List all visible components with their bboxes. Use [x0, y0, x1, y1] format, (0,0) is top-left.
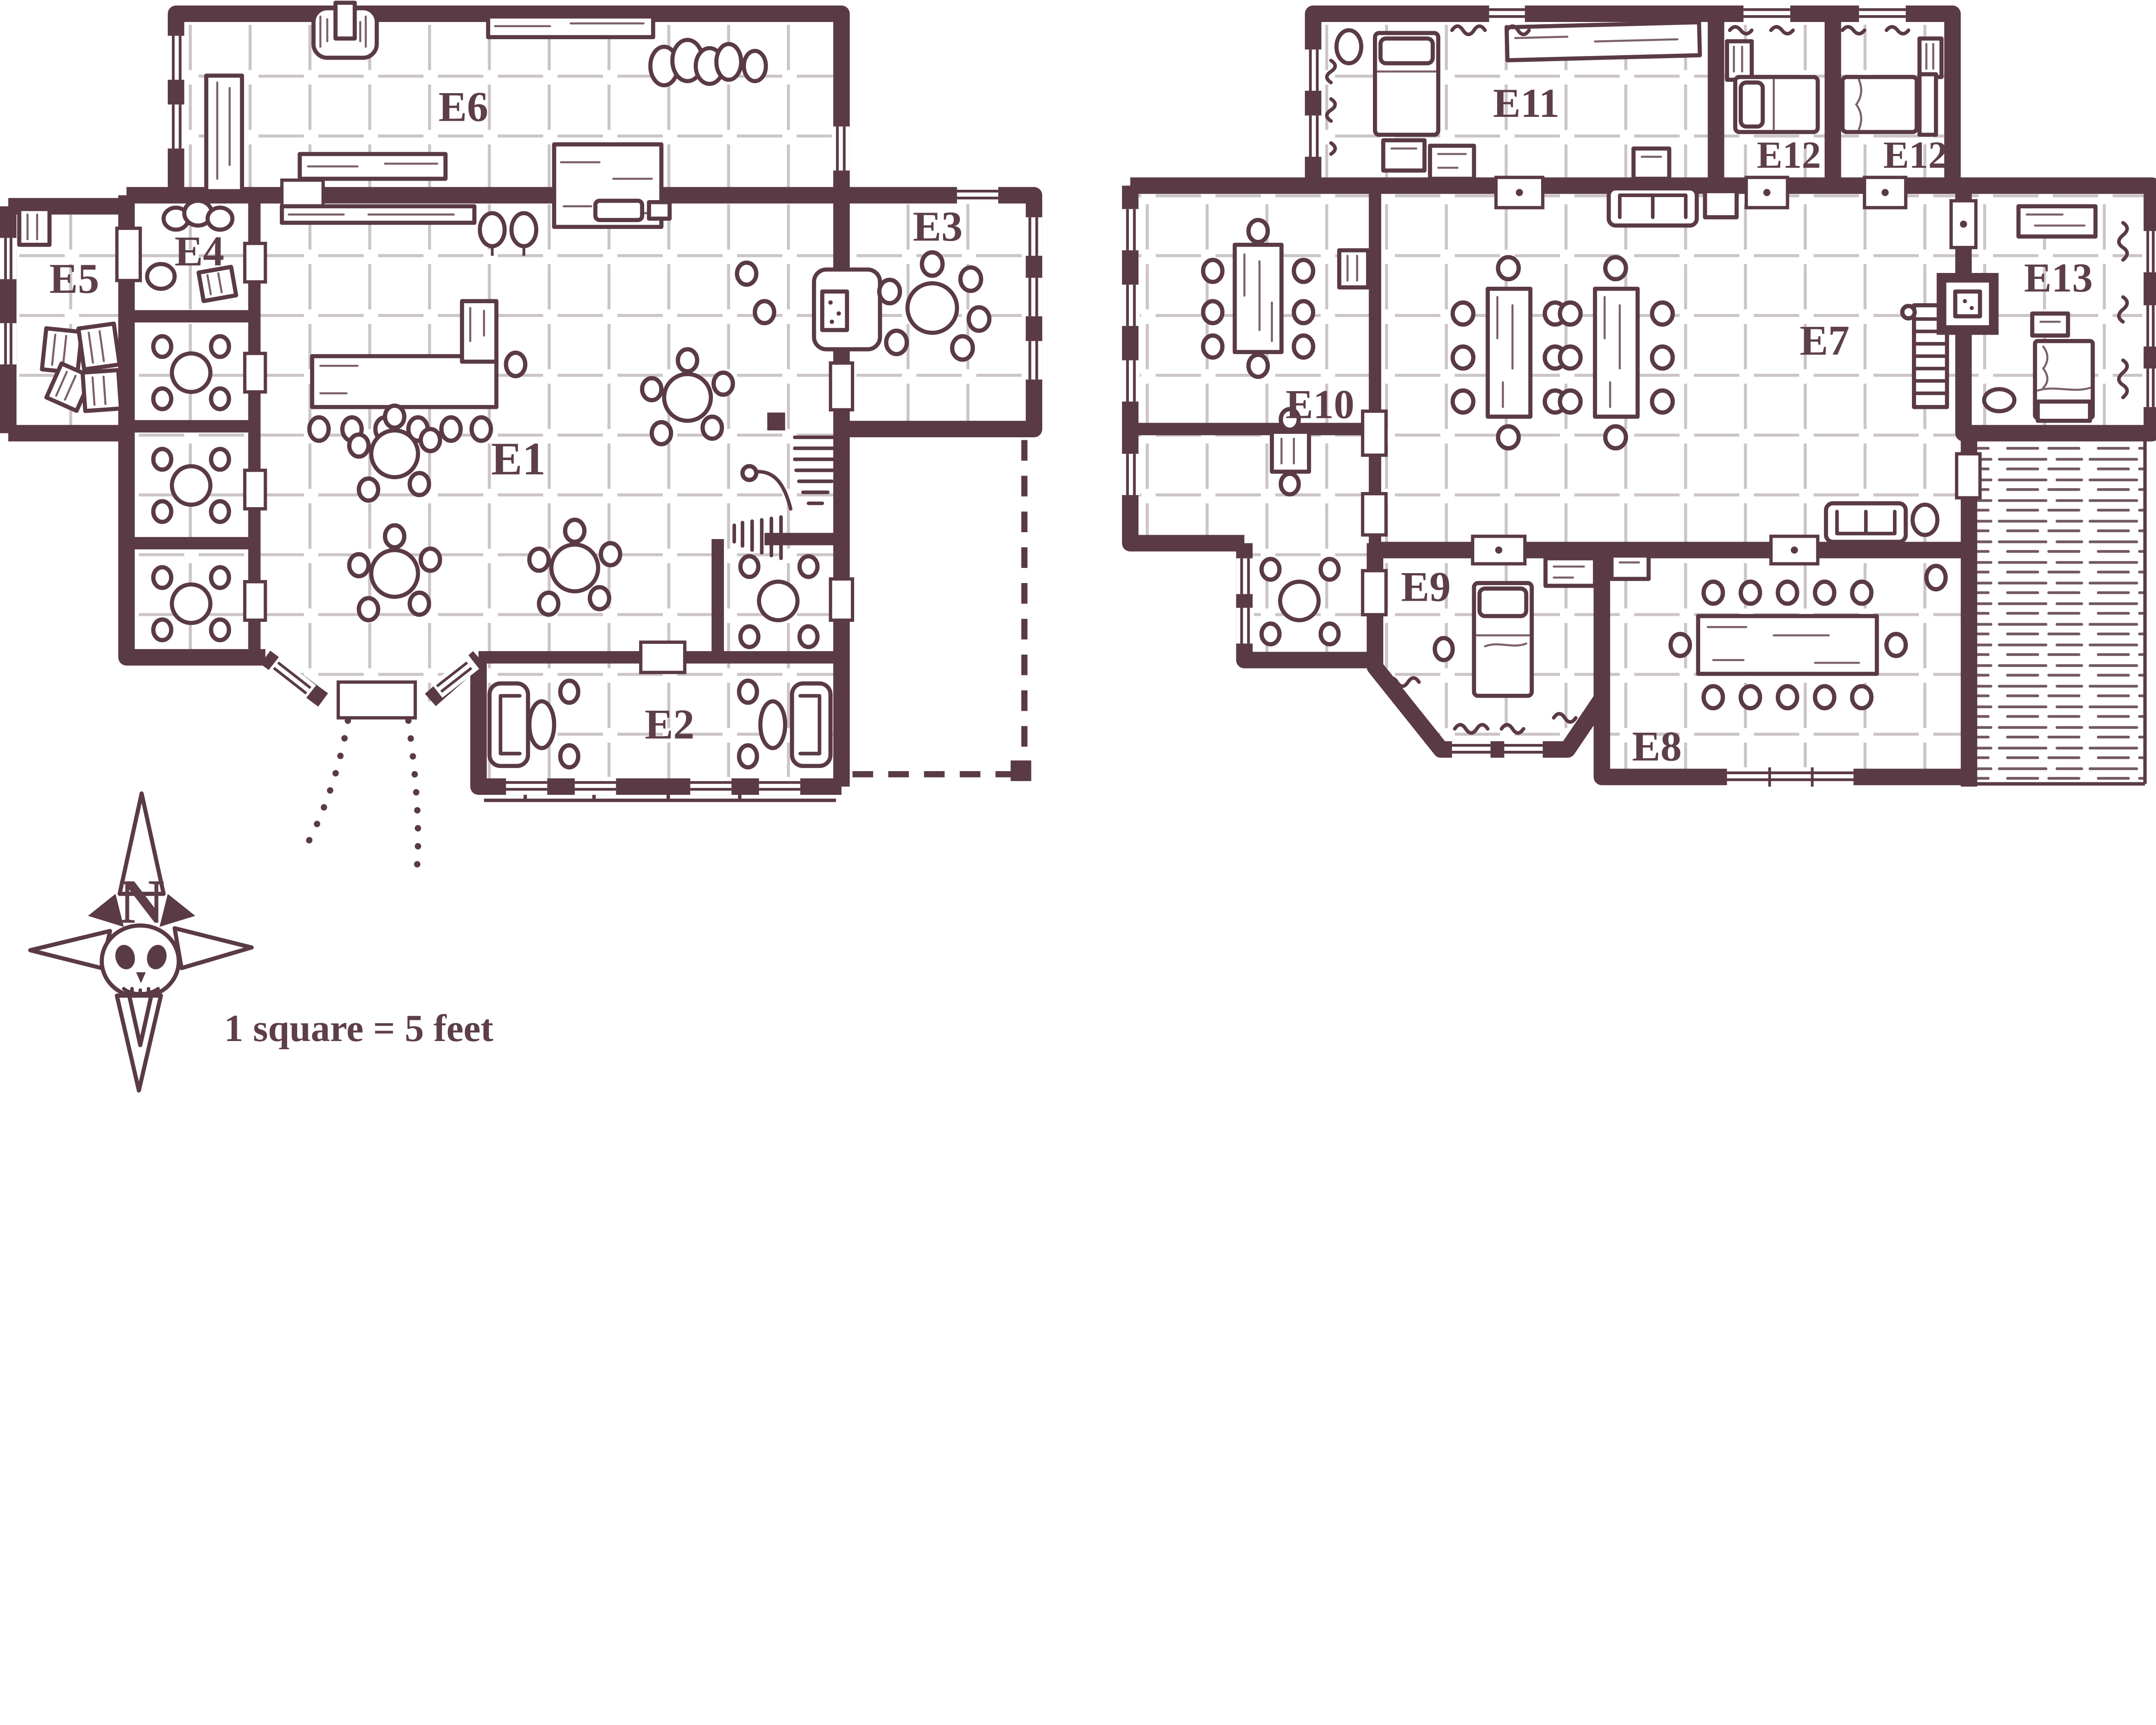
room-label-e13: E13	[2024, 255, 2093, 301]
window	[1122, 285, 1140, 326]
window	[0, 238, 16, 279]
window	[0, 323, 16, 364]
hearth	[814, 270, 880, 349]
door-e2	[641, 642, 685, 672]
window	[1025, 341, 1042, 379]
compass-letter: N	[119, 866, 164, 937]
armchair	[792, 684, 830, 766]
door-room	[245, 582, 266, 620]
door-e12a	[1746, 177, 1788, 207]
door-corridor	[1363, 494, 1386, 535]
door-e5	[117, 228, 140, 280]
door-e3	[830, 363, 852, 410]
skull	[102, 925, 179, 1045]
fireplace	[1942, 278, 1994, 330]
room-label-e10: E10	[1285, 381, 1354, 427]
basket	[1336, 30, 1361, 63]
room-label-e12a: E12	[1757, 134, 1821, 176]
window	[575, 777, 616, 795]
door-e9-bay	[1473, 536, 1525, 564]
window	[1236, 558, 1254, 594]
window	[1504, 740, 1543, 758]
door-e9-room	[1363, 571, 1386, 615]
room-label-e1: E1	[491, 433, 546, 485]
door-e10	[1363, 411, 1386, 455]
entrance-double-door	[338, 682, 415, 718]
window	[1452, 740, 1490, 758]
door-room	[245, 354, 266, 392]
room-label-e5: E5	[50, 255, 99, 302]
bench	[595, 201, 642, 220]
bed	[1474, 583, 1532, 696]
window	[1727, 767, 1853, 787]
window	[506, 777, 547, 795]
chest	[1430, 146, 1474, 179]
window	[1236, 608, 1254, 643]
window	[690, 777, 732, 795]
chest	[1383, 140, 1425, 170]
compass-east-arrow	[175, 928, 252, 968]
compass-west-arrow	[30, 931, 110, 968]
window	[1122, 360, 1140, 401]
door-e8	[1771, 536, 1818, 564]
door-se-room	[830, 579, 852, 620]
forge	[313, 3, 377, 58]
feast-table	[1698, 616, 1877, 674]
courtyard-outline	[852, 440, 1031, 781]
room-label-e6: E6	[439, 84, 488, 131]
floorplan-map: E1 E2 E3 E4 E5 E6 E7 E8 E9 E10 E11 E12 E…	[0, 0, 2156, 1093]
window	[2142, 369, 2156, 407]
window	[1122, 209, 1140, 251]
side-table	[1705, 191, 1736, 217]
compass-rose: N	[30, 793, 251, 1091]
window	[1859, 4, 1905, 22]
crate	[1727, 41, 1752, 80]
sofa	[1609, 188, 1697, 226]
window	[759, 777, 800, 795]
bed	[1843, 74, 1936, 135]
door-e13	[1951, 201, 1976, 248]
room-label-e8: E8	[1632, 723, 1682, 770]
rug	[1984, 389, 2014, 411]
room-label-e11: E11	[1493, 80, 1559, 126]
window	[1025, 278, 1042, 316]
bed	[2035, 341, 2093, 421]
window	[1122, 454, 1140, 495]
window	[1025, 217, 1042, 256]
room-label-e12b: E12	[1883, 134, 1948, 176]
door-e4	[245, 243, 266, 282]
window	[1305, 50, 1322, 91]
crate	[1920, 38, 1942, 77]
window	[832, 126, 849, 170]
crate	[1611, 555, 1648, 579]
window	[2142, 305, 2156, 347]
chest	[1633, 148, 1669, 179]
crate	[1339, 250, 1368, 287]
side-table	[206, 75, 242, 191]
room-label-e7: E7	[1800, 317, 1849, 364]
dresser	[1545, 558, 1595, 586]
window	[1743, 4, 1790, 22]
window	[168, 104, 185, 148]
window	[1305, 116, 1322, 157]
window	[168, 36, 185, 80]
room-label-e4: E4	[175, 228, 224, 275]
crate	[649, 202, 670, 219]
window	[2142, 231, 2156, 273]
nightstand	[2032, 314, 2068, 336]
bed	[1735, 77, 1818, 132]
entrance-path	[303, 721, 418, 872]
door-porch	[1957, 454, 1980, 498]
door-room	[245, 470, 266, 509]
dresser	[2018, 206, 2096, 236]
room-label-e9: E9	[1401, 563, 1451, 610]
bed	[1375, 33, 1438, 135]
door-e12b	[1865, 177, 1906, 207]
door-e11	[1496, 177, 1542, 207]
support-post	[767, 413, 785, 430]
window	[957, 185, 998, 203]
scale-note: 1 square = 5 feet	[224, 1007, 494, 1050]
porch-deck	[1969, 433, 2145, 784]
long-table	[1235, 245, 1282, 352]
armchair	[489, 684, 528, 766]
sofa	[1826, 503, 1906, 542]
room-label-e2: E2	[645, 701, 694, 748]
side-table	[1913, 505, 1937, 535]
window	[1489, 4, 1525, 22]
room-label-e3: E3	[913, 203, 962, 250]
